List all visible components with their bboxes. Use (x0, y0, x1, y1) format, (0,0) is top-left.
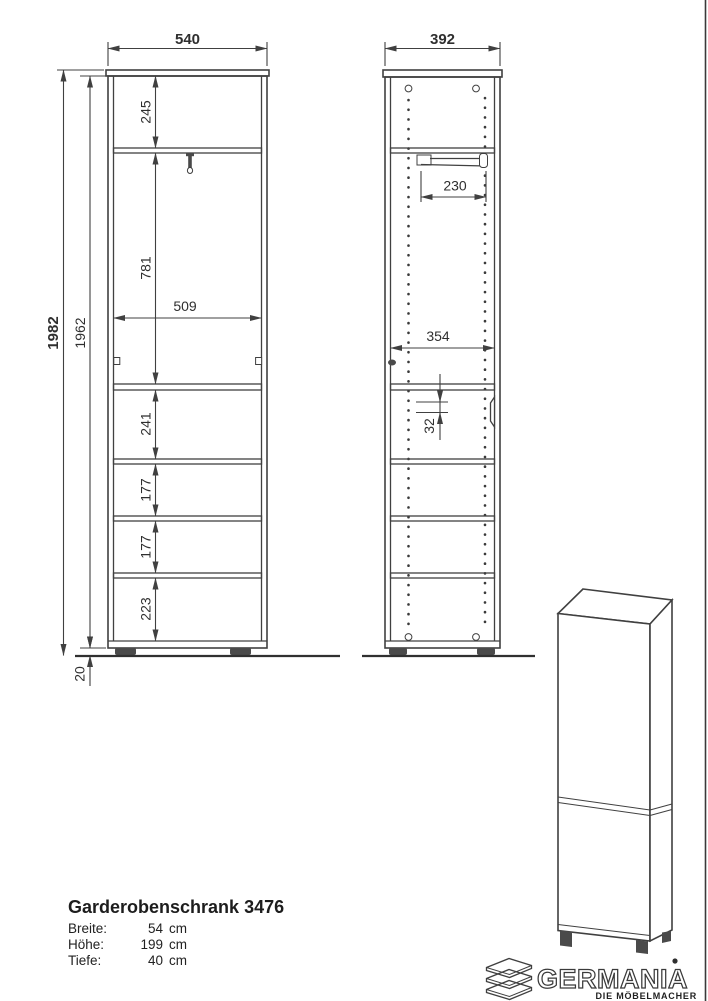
dim-label-392: 392 (430, 31, 455, 48)
hook-detail (186, 153, 194, 174)
side-shelves (391, 148, 495, 578)
spec-label: Breite: (68, 921, 107, 936)
brand-name: GERMANIA (537, 964, 688, 994)
dim-overall-height: 1982 (45, 70, 104, 656)
spec-unit: cm (169, 921, 187, 936)
spec-value: 40 (148, 953, 163, 968)
dim-section-177a: 177 (138, 464, 156, 516)
dim-section-245: 245 (138, 76, 156, 148)
dim-section-177b: 177 (138, 521, 156, 573)
dim-label-245: 245 (138, 100, 154, 124)
spec-unit: cm (169, 937, 187, 952)
spec-label: Höhe: (68, 937, 104, 952)
foot (389, 648, 407, 655)
iso-side-face (650, 600, 672, 941)
shelf (114, 459, 262, 464)
foot (115, 648, 136, 655)
brand-tagline: DIE MÖBELMACHER (596, 991, 698, 1001)
dim-label-177a: 177 (138, 478, 154, 502)
spec-value: 199 (140, 937, 163, 952)
shelf (391, 516, 495, 521)
dim-label-20: 20 (72, 666, 88, 682)
shelf (391, 573, 495, 578)
technical-drawing-page: 540 (0, 0, 708, 1001)
dim-inner-width: 509 (114, 298, 262, 318)
dim-section-781: 781 (138, 153, 156, 384)
dim-label-230: 230 (443, 178, 467, 194)
brand-trademark-dot (672, 958, 677, 963)
dim-label-354: 354 (426, 328, 450, 344)
shelf (391, 384, 495, 390)
front-cabinet-outline (106, 70, 269, 648)
brand-logo: GERMANIA DIE MÖBELMACHER (487, 958, 698, 1001)
germania-stack-icon (487, 959, 532, 1000)
foot (636, 940, 648, 954)
dim-rail-length: 230 (421, 171, 486, 202)
spec-row-hoehe: Höhe: 199 cm (68, 937, 187, 952)
spec-label: Tiefe: (68, 953, 101, 968)
drawing-svg: 540 (0, 0, 708, 1001)
shelf (114, 573, 262, 578)
spec-unit: cm (169, 953, 187, 968)
hole (473, 634, 480, 641)
foot (662, 931, 671, 943)
dim-label-177b: 177 (138, 535, 154, 559)
dim-label-1962: 1962 (72, 317, 88, 348)
fitting-holes (405, 85, 479, 640)
hole (405, 85, 412, 92)
dim-section-241: 241 (138, 390, 156, 459)
dim-label-223: 223 (138, 597, 154, 621)
foot (560, 931, 572, 948)
dim-front-width: 540 (108, 31, 267, 66)
spec-row-tiefe: Tiefe: 40 cm (68, 953, 187, 968)
spec-row-breite: Breite: 54 cm (68, 921, 187, 936)
shelf-pin (256, 358, 262, 365)
front-view: 540 (45, 31, 340, 686)
dim-side-depth: 392 (385, 31, 500, 66)
shelf (114, 384, 262, 390)
dim-label-32: 32 (421, 418, 437, 434)
spec-value: 54 (148, 921, 164, 936)
shelf (391, 459, 495, 464)
foot (477, 648, 495, 655)
shelf (114, 148, 262, 153)
foot (230, 648, 251, 655)
shelf-pin-dark (388, 360, 396, 366)
hole (405, 634, 412, 641)
title-block: Garderobenschrank 3476 Breite: 54 cm Höh… (68, 897, 284, 968)
dim-label-781: 781 (138, 256, 154, 280)
clothes-rail (417, 154, 488, 168)
iso-front-face (558, 614, 650, 942)
dim-label-1982: 1982 (45, 316, 62, 349)
shelf (391, 148, 495, 153)
iso-view (558, 589, 672, 954)
hole (473, 85, 480, 92)
shelf-pin (114, 358, 120, 365)
door-handle (491, 397, 495, 427)
dim-label-540: 540 (175, 31, 200, 48)
dim-label-241: 241 (138, 412, 154, 436)
front-shelves (114, 148, 262, 578)
dim-label-509: 509 (173, 298, 197, 314)
shelf-pins (114, 358, 262, 365)
shelf (114, 516, 262, 521)
side-view: 392 (362, 31, 535, 656)
dim-carcass-height: 1962 (72, 76, 106, 648)
dim-plinth: 20 (72, 636, 91, 686)
product-title: Garderobenschrank 3476 (68, 897, 284, 917)
dim-inner-depth: 354 (391, 328, 495, 348)
dim-section-223: 223 (138, 578, 156, 641)
